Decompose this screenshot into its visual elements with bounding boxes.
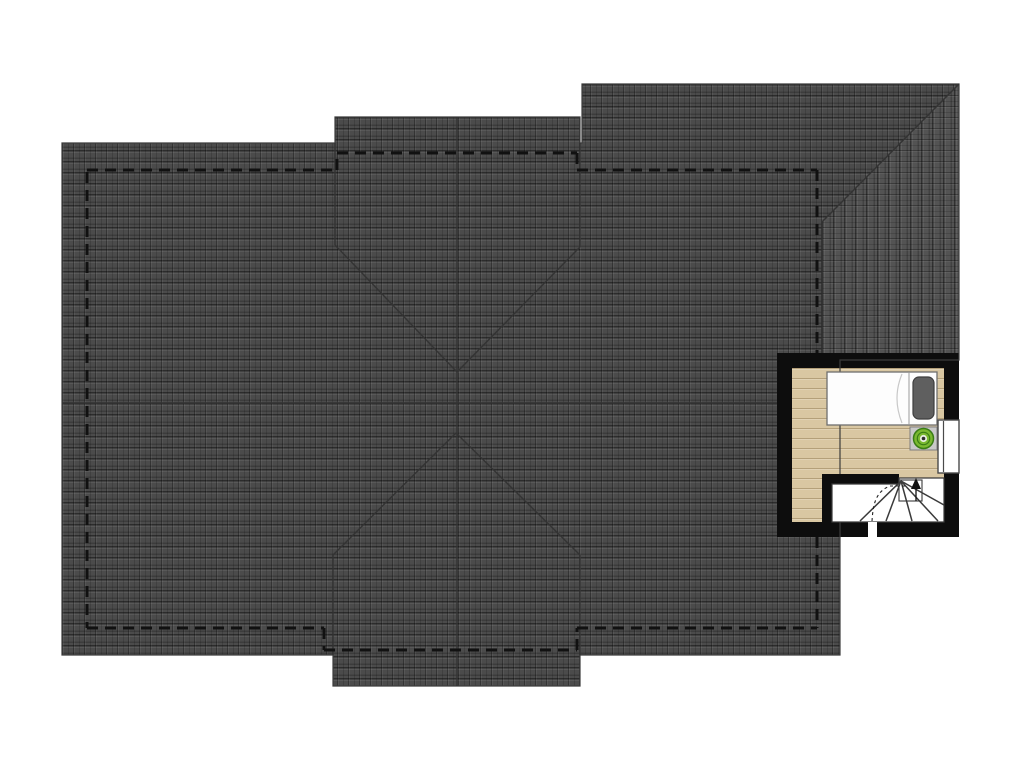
roof-plan: [0, 0, 1024, 768]
attic-room-floor: [792, 368, 944, 522]
